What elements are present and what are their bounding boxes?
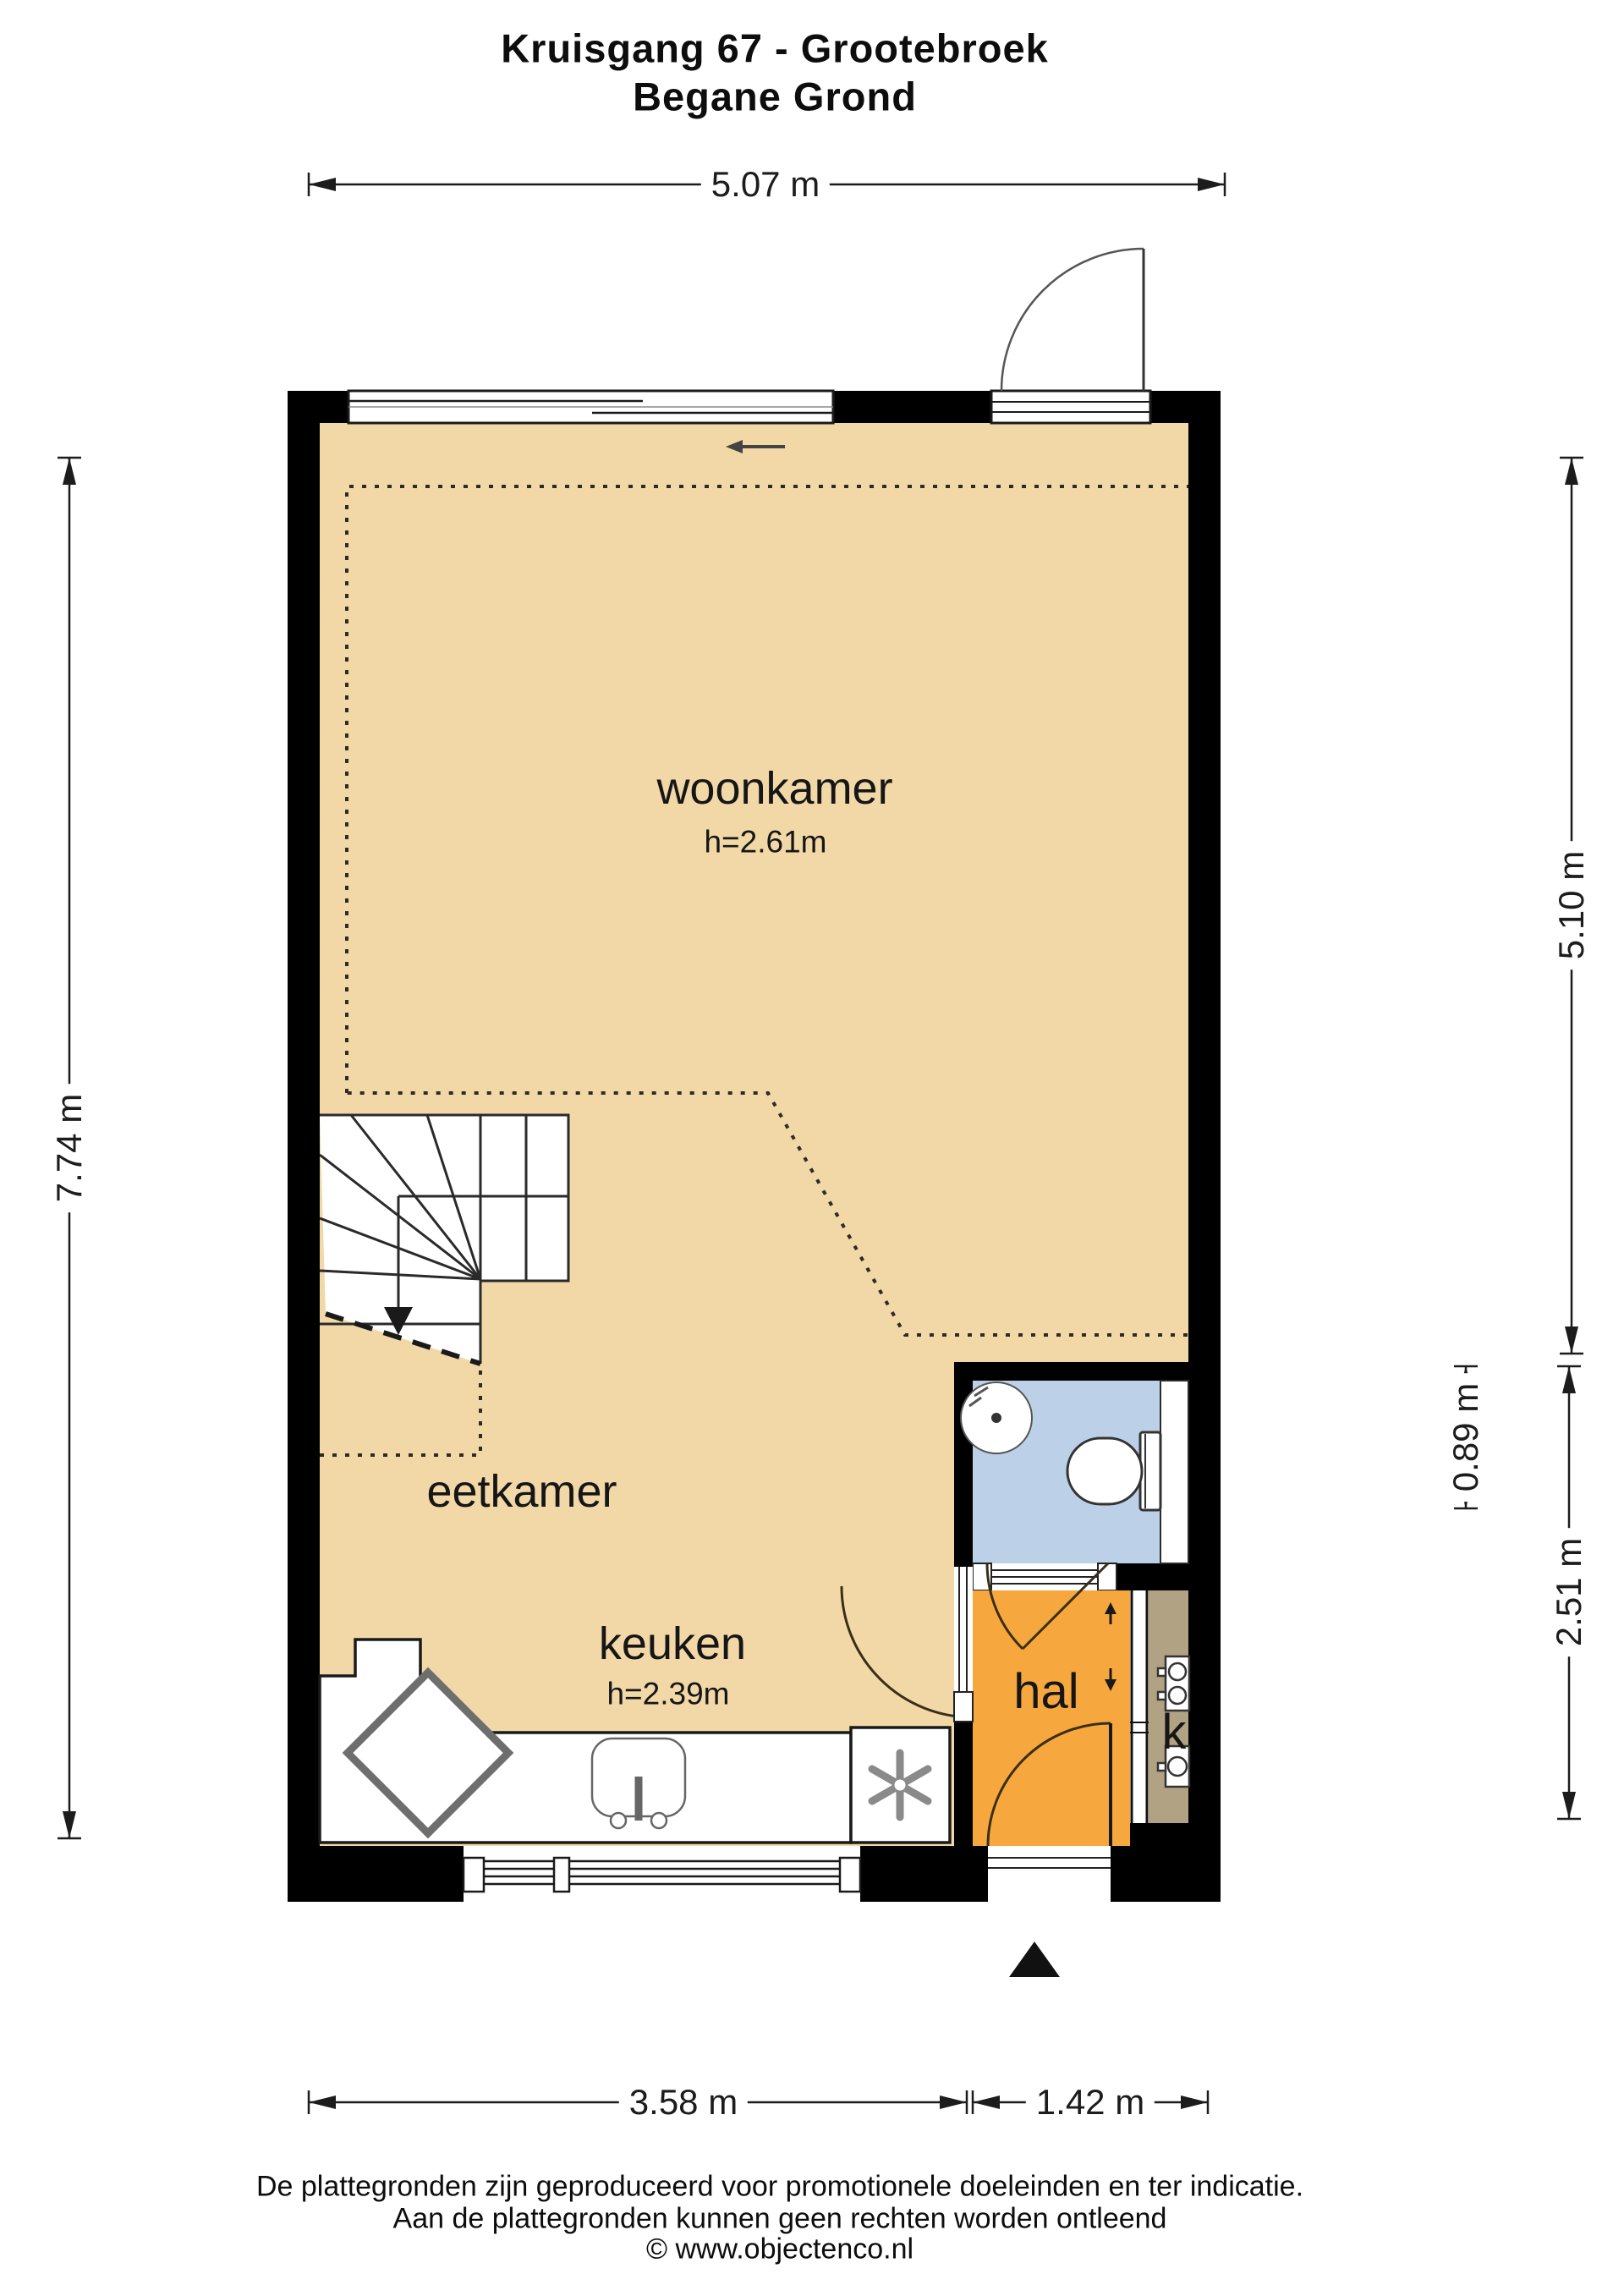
room-label-woonkamer: woonkamer [656,766,892,811]
keuken-doorway-frame [954,1567,973,1722]
room-label-keuken: keuken [599,1621,746,1667]
entrance-arrow [1009,1942,1060,1977]
ventilation-unit-icon [851,1727,950,1843]
corner-sink-icon [961,1382,1032,1453]
room-height-woonkamer: h=2.61m [704,827,826,858]
copyright-line: © www.objectenco.nl [646,2233,913,2266]
floorplan-canvas [0,0,1624,2296]
disclaimer-line-2: Aan de plattegronden kunnen geen rechten… [393,2203,1167,2236]
dim-label-left-height: 7.74 m [48,1084,91,1212]
disclaimer-line-1: De plattegronden zijn geproduceerd voor … [256,2171,1303,2204]
dim-label-bottom-left: 3.58 m [619,2081,748,2123]
room-height-keuken: h=2.39m [606,1678,729,1710]
floorplan-page: Kruisgang 67 - Grootebroek Begane Grond … [0,0,1624,2296]
plan-title: Kruisgang 67 - Grootebroek [501,25,1049,72]
hall-cabinet-divider [1130,1590,1149,1823]
hall [973,1563,1130,1902]
dim-label-bottom-right: 1.42 m [1026,2081,1155,2123]
dim-label-top-width: 5.07 m [701,163,830,206]
toilet-icon [1067,1432,1160,1510]
dim-label-right-small: 0.89 m [1445,1373,1487,1502]
room-label-hal: hal [1013,1667,1078,1717]
bathroom [961,1381,1188,1590]
dim-label-right-lower: 2.51 m [1548,1528,1590,1656]
room-label-eetkamer: eetkamer [426,1469,617,1514]
bottom-window [464,1846,860,1902]
room-label-meterkast: k [1162,1708,1187,1757]
garden-door [991,249,1150,423]
plan-subtitle: Begane Grond [633,74,917,120]
bathroom-duct [1160,1381,1188,1563]
dim-label-right-upper: 5.10 m [1550,841,1593,969]
kitchen-sink-icon [592,1738,685,1828]
